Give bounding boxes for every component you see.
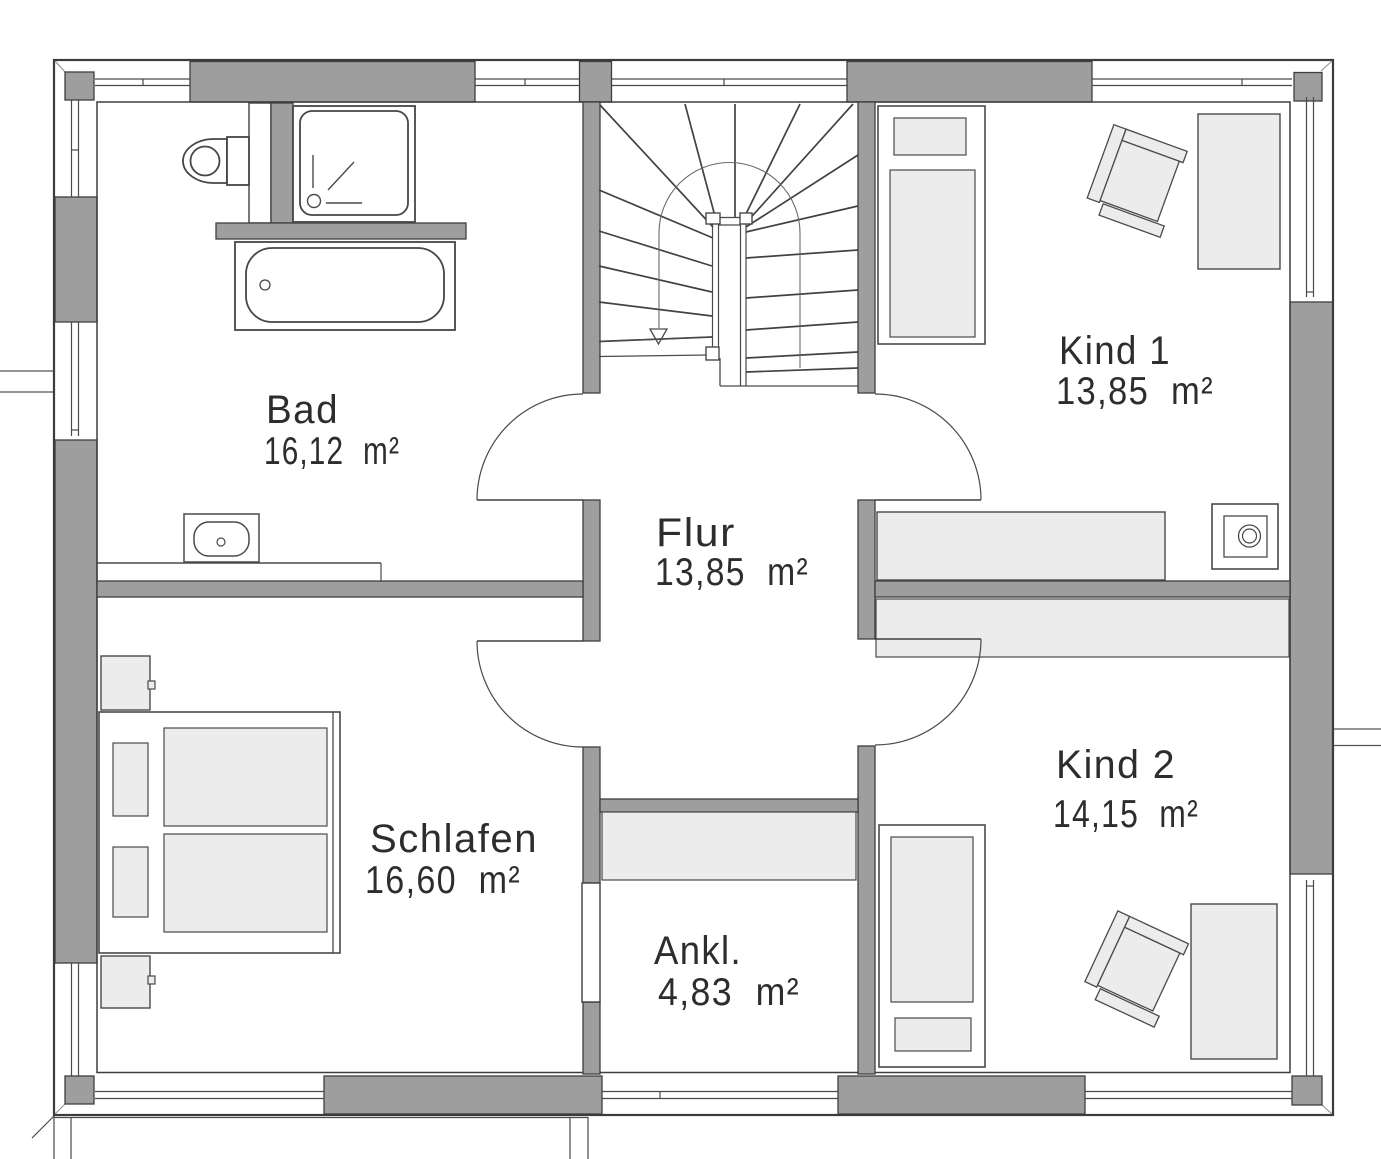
svg-text:Schlafen: Schlafen xyxy=(370,817,538,861)
svg-text:Ankl.: Ankl. xyxy=(654,929,742,973)
svg-text:Flur: Flur xyxy=(656,511,736,555)
svg-text:Kind 2: Kind 2 xyxy=(1056,743,1176,787)
svg-text:16,60 m²: 16,60 m² xyxy=(365,859,521,902)
svg-text:Bad: Bad xyxy=(266,388,339,432)
svg-text:14,15 m²: 14,15 m² xyxy=(1053,793,1199,836)
svg-text:4,83 m²: 4,83 m² xyxy=(658,971,800,1014)
svg-text:Kind 1: Kind 1 xyxy=(1059,329,1171,373)
svg-text:13,85 m²: 13,85 m² xyxy=(655,551,809,594)
svg-text:13,85 m²: 13,85 m² xyxy=(1056,370,1214,413)
svg-text:16,12 m²: 16,12 m² xyxy=(264,430,400,473)
